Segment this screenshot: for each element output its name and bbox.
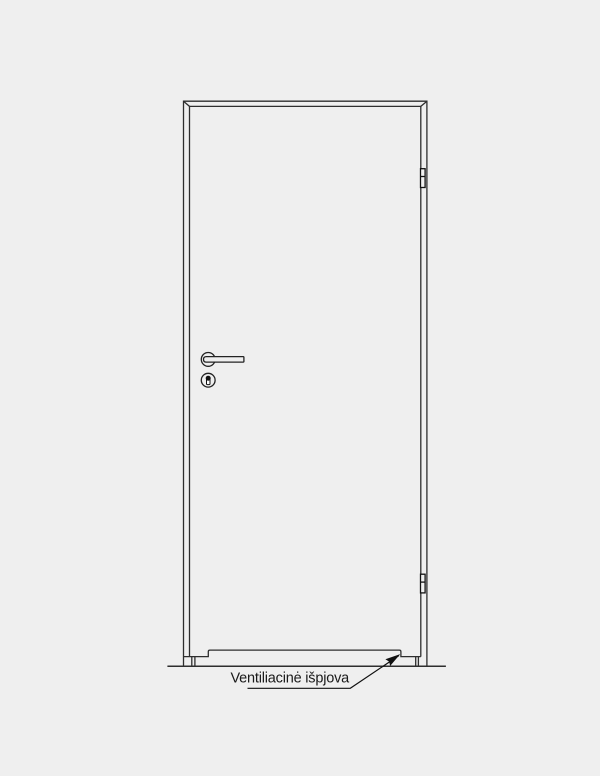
svg-text:Ventiliacinė išpjova: Ventiliacinė išpjova bbox=[231, 671, 351, 687]
